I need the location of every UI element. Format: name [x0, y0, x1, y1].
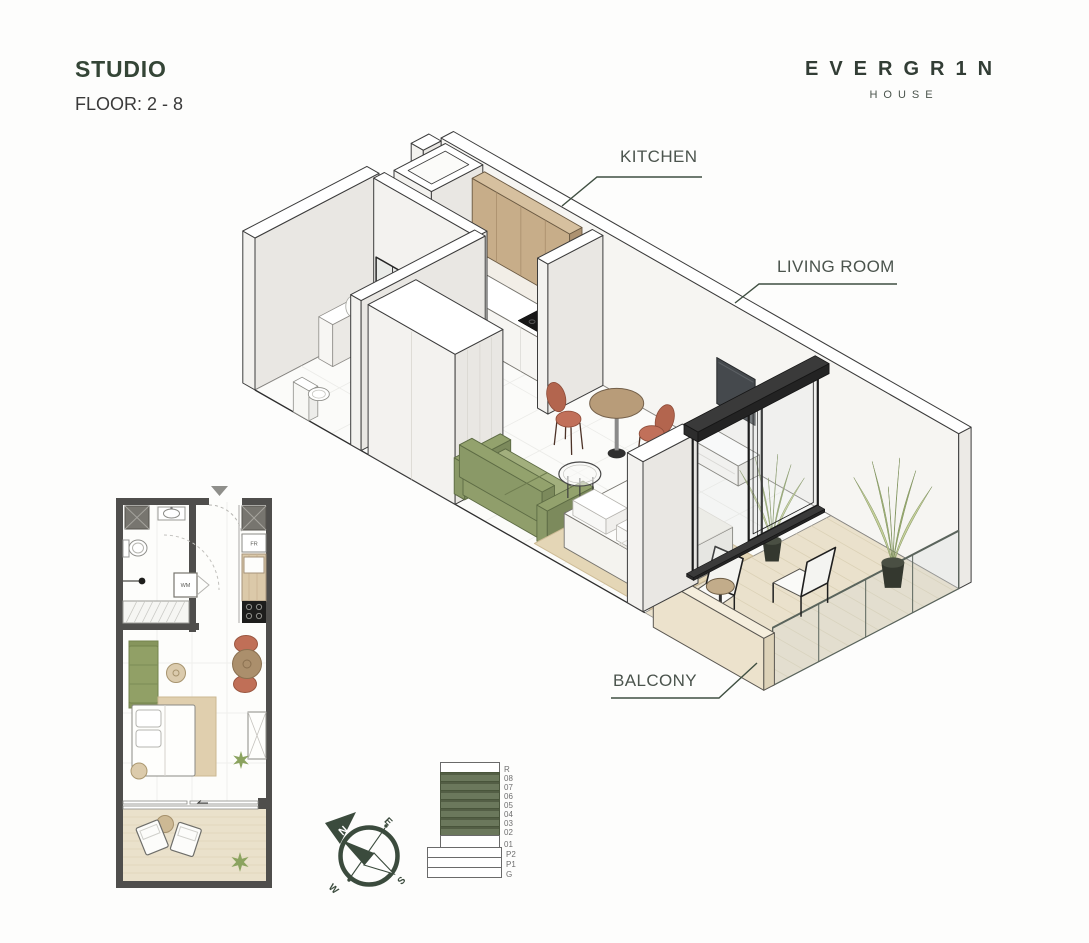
label-living-room: LIVING ROOM [777, 257, 895, 277]
compass-e: E [382, 816, 395, 829]
building-stack: R0807060504030201P2P1G [427, 763, 527, 878]
label-balcony: BALCONY [613, 671, 697, 691]
compass-w: W [326, 882, 341, 897]
compass-s: S [396, 875, 409, 888]
plan-window-wall [123, 801, 258, 810]
plan-kitchen: FR [242, 506, 266, 623]
floorplan-sheet: STUDIO FLOOR: 2 - 8 EVERGR1N HOUSE KITCH… [0, 0, 1089, 943]
washer-label: WM [181, 583, 191, 589]
fridge-label: FR [250, 542, 257, 548]
stack-floor-row: G [427, 868, 527, 878]
label-kitchen: KITCHEN [620, 147, 697, 167]
compass-icon: N E S W [318, 806, 418, 906]
floor-plan-2d: WM FR [112, 483, 277, 898]
entry-arrow-icon [211, 486, 228, 496]
